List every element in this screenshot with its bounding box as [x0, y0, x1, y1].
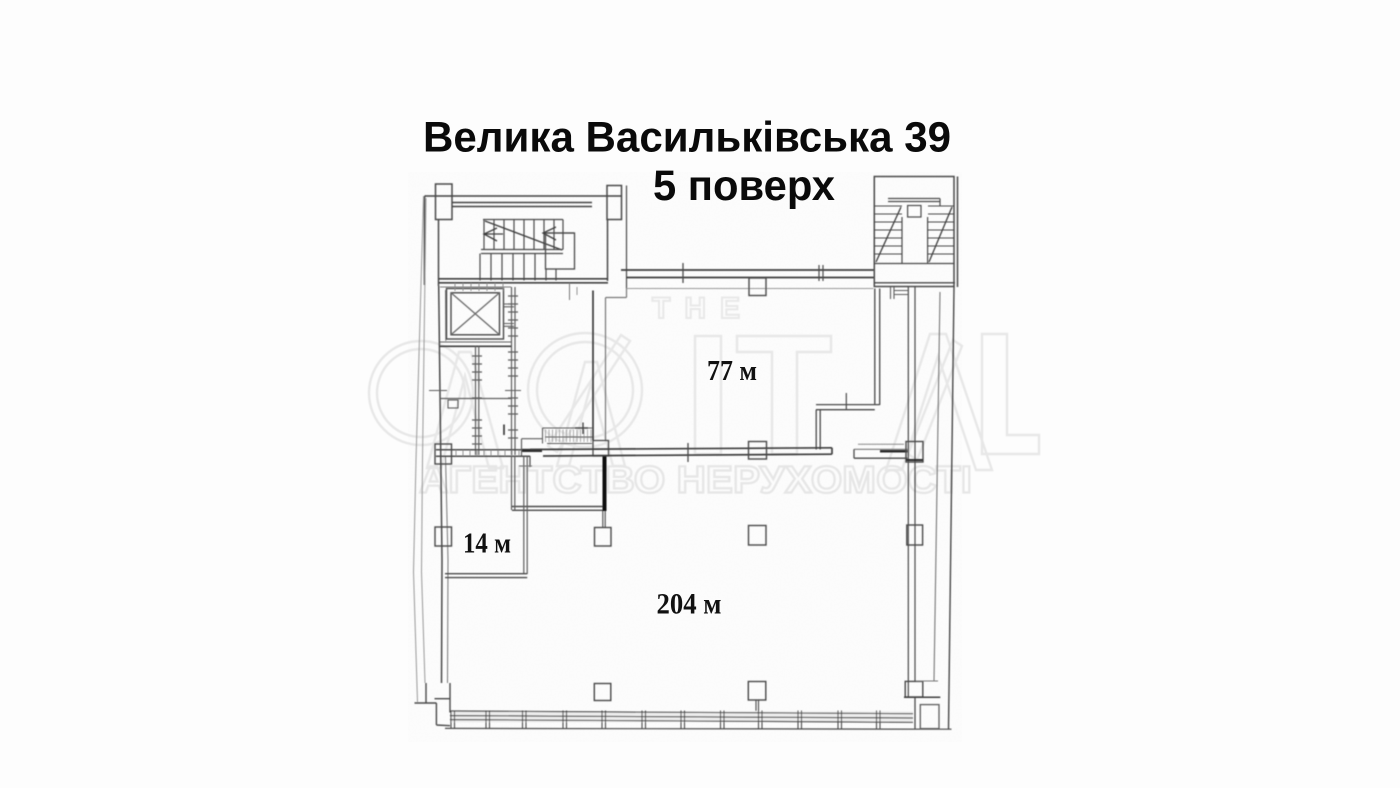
- svg-text:THE: THE: [652, 292, 754, 325]
- svg-text:Велика Васильківська 39: Велика Васильківська 39: [423, 114, 951, 162]
- svg-text:5 поверх: 5 поверх: [653, 162, 835, 210]
- svg-text:77 м: 77 м: [707, 355, 757, 387]
- svg-text:204 м: 204 м: [657, 588, 722, 621]
- svg-text:14 м: 14 м: [463, 529, 511, 560]
- svg-text:АГЕНТСТВО НЕРУХОМОСТІ: АГЕНТСТВО НЕРУХОМОСТІ: [419, 460, 972, 502]
